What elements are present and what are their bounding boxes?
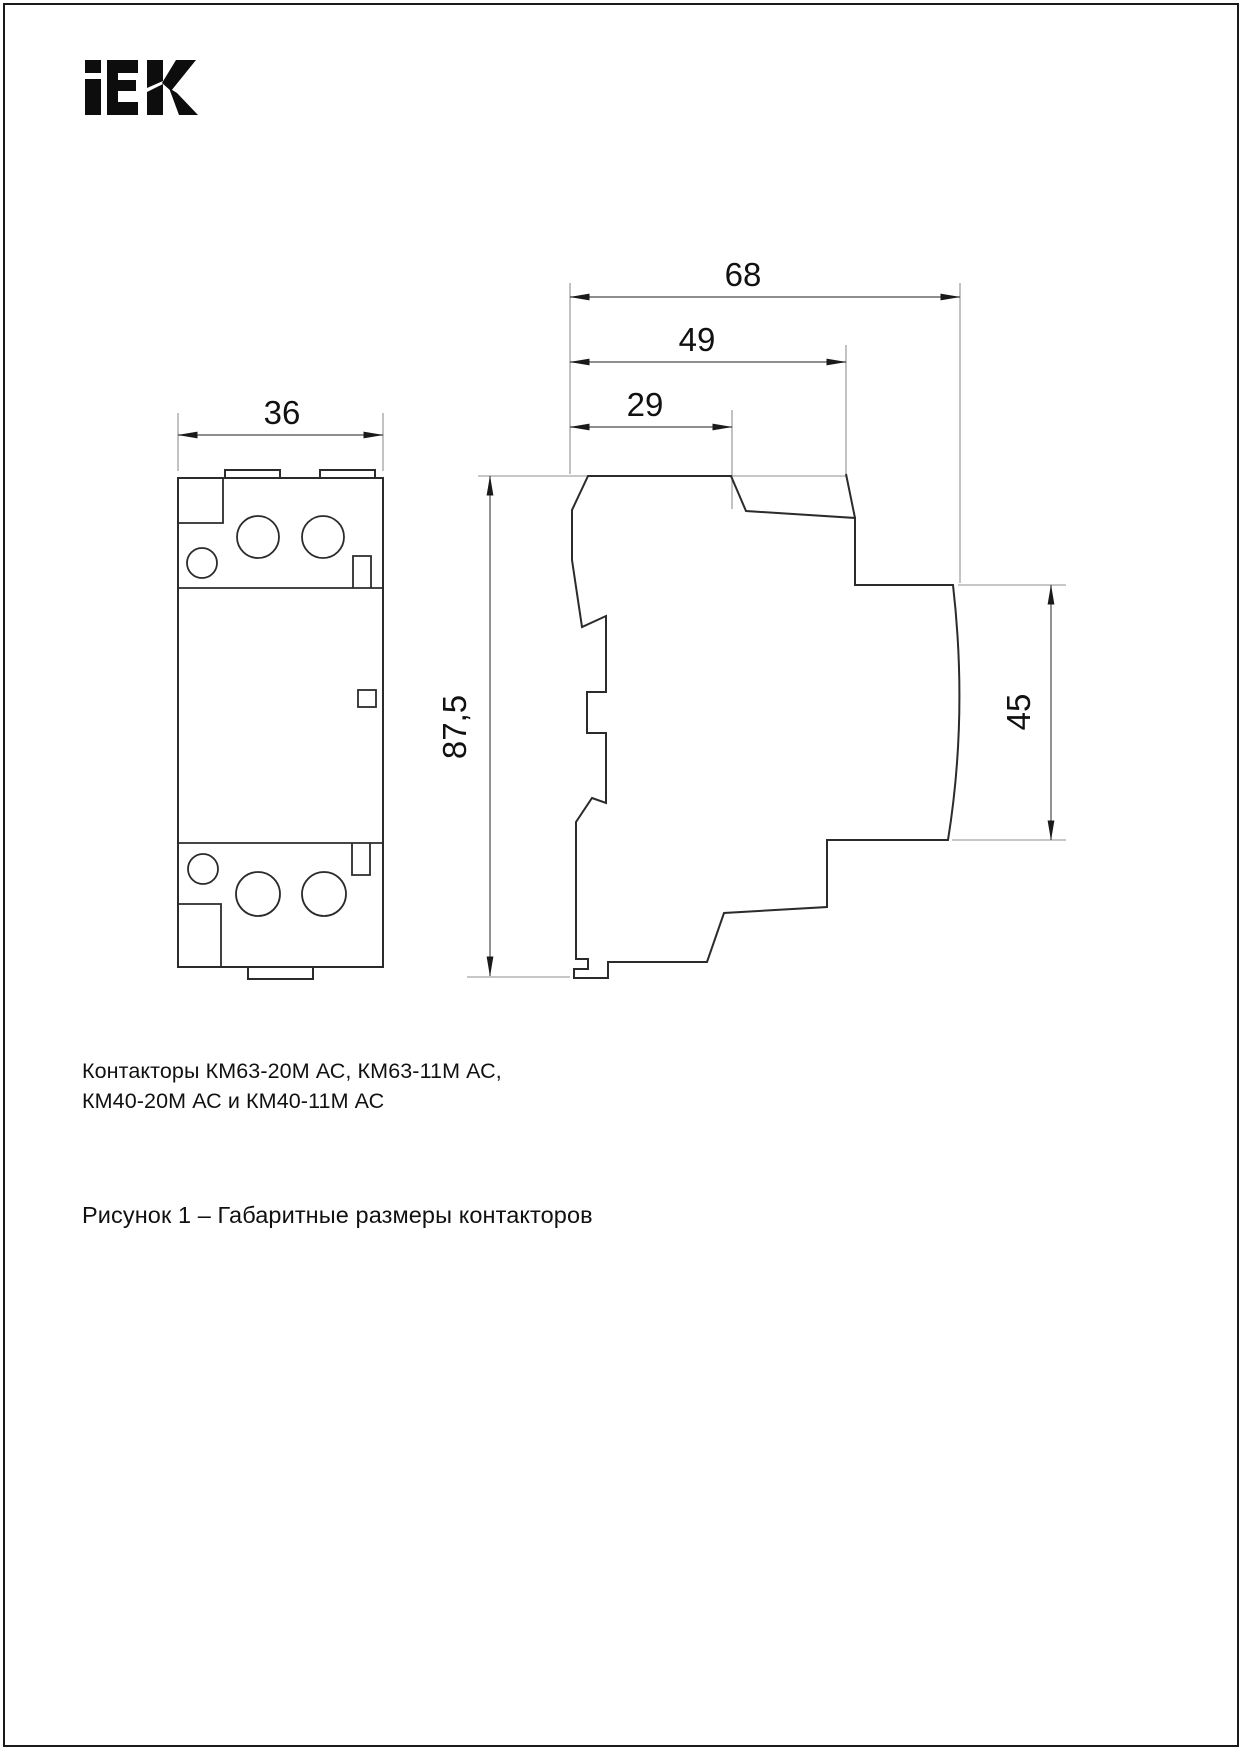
dim-label-depth-mid: 49 — [679, 321, 716, 358]
product-line: Контакторы КМ63-20М АС, КМ63-11М АС, — [82, 1056, 502, 1086]
dim-label-height: 87,5 — [436, 695, 473, 759]
product-designation: Контакторы КМ63-20М АС, КМ63-11М АС, КМ4… — [82, 1056, 502, 1116]
dim-label-depth-total: 68 — [725, 256, 762, 293]
front-terminal-hole — [302, 516, 344, 558]
front-bottom-left-notch — [178, 904, 221, 967]
front-top-left-step — [178, 478, 223, 523]
dim-label-depth-top: 29 — [627, 386, 664, 423]
dim-label-front-width: 36 — [264, 394, 301, 431]
front-terminal-hole — [237, 516, 279, 558]
dimensional-drawing: 36 — [0, 0, 1244, 1240]
product-line: КМ40-20М АС и КМ40-11М АС — [82, 1086, 502, 1116]
side-view: 68 49 29 87,5 45 — [436, 256, 1066, 978]
front-view: 36 — [178, 394, 383, 979]
front-top-tabs — [225, 470, 375, 478]
front-terminal-hole — [302, 872, 346, 916]
side-body-outline — [572, 476, 959, 978]
front-terminal-hole — [187, 548, 217, 578]
front-terminal-hole — [236, 872, 280, 916]
front-bottom-tab — [248, 967, 313, 979]
figure-caption: Рисунок 1 – Габаритные размеры контактор… — [82, 1202, 593, 1229]
document-page: 36 — [0, 0, 1244, 1752]
front-lower-right-slot — [352, 843, 370, 875]
front-upper-right-slot — [353, 556, 371, 588]
dim-label-front-height: 45 — [1000, 694, 1037, 731]
front-mid-square — [358, 690, 376, 707]
side-cover-slant — [846, 474, 855, 518]
front-terminal-hole — [188, 854, 218, 884]
